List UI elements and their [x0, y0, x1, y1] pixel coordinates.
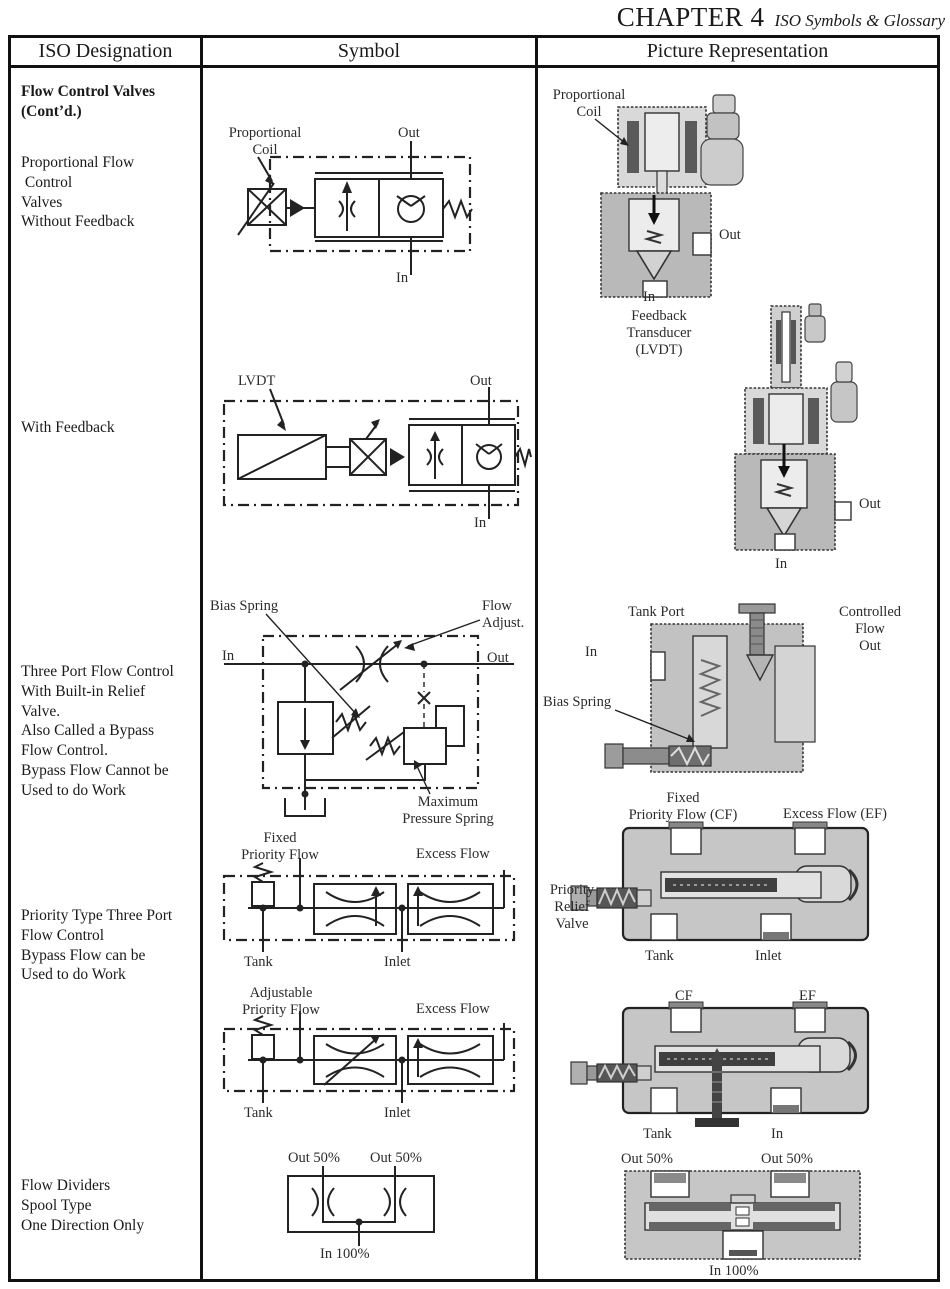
label-out: Out — [470, 373, 492, 390]
adjustable-priority-picture-drawing — [543, 988, 943, 1150]
label-adjustable-priority-flow: Adjustable Priority Flow — [216, 985, 346, 1019]
label-out-left: Out 50% — [621, 1151, 673, 1168]
designation-three-port: Three Port Flow Control With Built-in Re… — [21, 662, 174, 801]
label-in: In — [771, 1126, 783, 1143]
label-excess-flow-ef: Excess Flow (EF) — [783, 806, 887, 823]
label-tank-port: Tank Port — [628, 604, 685, 621]
column-header-symbol: Symbol — [203, 38, 538, 65]
label-out: Out — [719, 227, 741, 244]
fixed-priority-symbol: Fixed Priority Flow Excess Flow Tank Inl… — [208, 830, 533, 975]
adjustable-priority-symbol: Adjustable Priority Flow Excess Flow Tan… — [208, 985, 533, 1125]
label-maximum-pressure-spring: Maximum Pressure Spring — [373, 794, 523, 828]
label-tank: Tank — [244, 954, 273, 971]
label-fixed-priority-flow-cf: Fixed Priority Flow (CF) — [603, 790, 763, 824]
label-excess-flow: Excess Flow — [416, 846, 490, 863]
table-body: Flow Control Valves (Cont’d.) Proportion… — [11, 68, 937, 1279]
label-tank: Tank — [643, 1126, 672, 1143]
label-tank: Tank — [244, 1105, 273, 1122]
label-in: In 100% — [709, 1263, 759, 1280]
label-out: Out — [859, 496, 881, 513]
feedback-valve-symbol-drawing — [208, 373, 533, 533]
label-controlled-flow-out: Controlled Flow Out — [815, 604, 925, 655]
label-bias-spring: Bias Spring — [543, 694, 611, 711]
label-lvdt: LVDT — [238, 373, 275, 390]
adjustable-priority-picture: CF EF Tank In — [543, 988, 943, 1150]
three-port-picture: Tank Port Controlled Flow Out In Bias Sp… — [543, 596, 943, 821]
feedback-valve-picture: Feedback Transducer (LVDT) Out In — [593, 298, 943, 586]
label-out: Out — [398, 125, 420, 142]
label-in: In — [396, 270, 408, 287]
section-title: Flow Control Valves (Cont’d.) — [21, 82, 155, 122]
label-proportional-coil: Proportional Coil — [212, 125, 318, 159]
label-ef: EF — [799, 988, 816, 1005]
label-excess-flow: Excess Flow — [416, 1001, 490, 1018]
flow-divider-picture: Out 50% Out 50% In 100% — [593, 1151, 940, 1283]
designation-proportional-no-feedback: Proportional Flow Control Valves Without… — [21, 153, 134, 232]
designation-cell: Flow Control Valves (Cont’d.) Proportion… — [11, 68, 203, 1279]
label-priority-relief-valve: Priority Relief Valve — [543, 882, 601, 933]
chapter-title: CHAPTER 4 — [617, 2, 765, 32]
chapter-header: CHAPTER 4 ISO Symbols & Glossary — [535, 2, 945, 33]
table-header-row: ISO Designation Symbol Picture Represent… — [11, 38, 937, 68]
iso-symbols-table: ISO Designation Symbol Picture Represent… — [8, 35, 940, 1282]
feedback-valve-symbol: LVDT Out In — [208, 373, 533, 533]
label-in: In 100% — [320, 1246, 370, 1263]
label-in: In — [585, 644, 597, 661]
designation-with-feedback: With Feedback — [21, 418, 115, 438]
flow-divider-symbol: Out 50% Out 50% In 100% — [208, 1150, 533, 1265]
label-tank: Tank — [645, 948, 674, 965]
label-inlet: Inlet — [384, 1105, 411, 1122]
three-port-symbol: Bias Spring In Flow Adjust. Out Maximum … — [208, 598, 533, 833]
label-inlet: Inlet — [755, 948, 782, 965]
flow-divider-picture-drawing — [593, 1151, 940, 1283]
flow-divider-symbol-drawing — [208, 1150, 533, 1265]
chapter-subtitle: ISO Symbols & Glossary — [775, 11, 945, 30]
column-header-iso-designation: ISO Designation — [11, 38, 203, 65]
label-out-right: Out 50% — [761, 1151, 813, 1168]
column-header-picture-representation: Picture Representation — [538, 38, 937, 65]
label-in: In — [222, 648, 234, 665]
label-fixed-priority-flow: Fixed Priority Flow — [220, 830, 340, 864]
label-inlet: Inlet — [384, 954, 411, 971]
label-flow-adjust: Flow Adjust. — [482, 598, 524, 632]
label-cf: CF — [675, 988, 693, 1005]
proportional-valve-symbol: Proportional Coil Out In — [208, 123, 533, 288]
label-bias-spring: Bias Spring — [210, 598, 278, 615]
label-out: Out — [487, 650, 509, 667]
label-proportional-coil: Proportional Coil — [543, 87, 635, 121]
label-in: In — [474, 515, 486, 532]
label-in: In — [775, 556, 787, 573]
symbol-cell: Proportional Coil Out In — [203, 68, 538, 1279]
label-feedback-transducer: Feedback Transducer (LVDT) — [599, 308, 719, 359]
fixed-priority-picture: Fixed Priority Flow (CF) Excess Flow (EF… — [543, 790, 943, 980]
proportional-valve-picture: Proportional Coil Out In — [543, 85, 940, 307]
label-out-right: Out 50% — [370, 1150, 422, 1167]
picture-cell: Proportional Coil Out In — [538, 68, 937, 1279]
document-page: CHAPTER 4 ISO Symbols & Glossary ISO Des… — [0, 0, 950, 1289]
label-out-left: Out 50% — [288, 1150, 340, 1167]
designation-priority-type: Priority Type Three Port Flow Control By… — [21, 906, 172, 985]
designation-flow-dividers: Flow Dividers Spool Type One Direction O… — [21, 1176, 144, 1235]
